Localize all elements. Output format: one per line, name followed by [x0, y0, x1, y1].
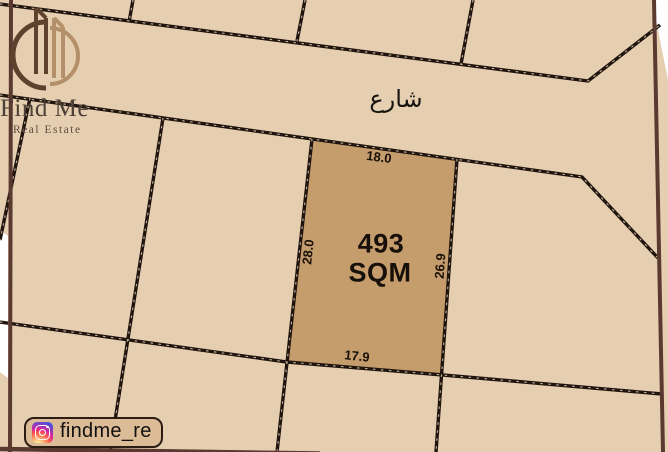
instagram-badge: findme_re	[24, 417, 163, 448]
instagram-icon	[32, 422, 53, 443]
map-border-left	[10, 0, 11, 452]
land-plot-map: شارع 18.0 28.0 26.9 17.9 493 SQM Find Me…	[0, 0, 668, 452]
dimension-bottom-label: 17.9	[344, 347, 371, 365]
dimension-left-label: 28.0	[299, 239, 317, 266]
plot-area-value: 493	[358, 229, 405, 259]
street-label: شارع	[369, 85, 422, 113]
plot-map-canvas: شارع 18.0 28.0 26.9 17.9 493 SQM	[0, 0, 668, 452]
scan-edge-left	[0, 230, 8, 378]
plot-area-unit: SQM	[348, 258, 411, 288]
instagram-handle: findme_re	[60, 420, 152, 443]
dimension-right-label: 26.9	[432, 253, 449, 279]
